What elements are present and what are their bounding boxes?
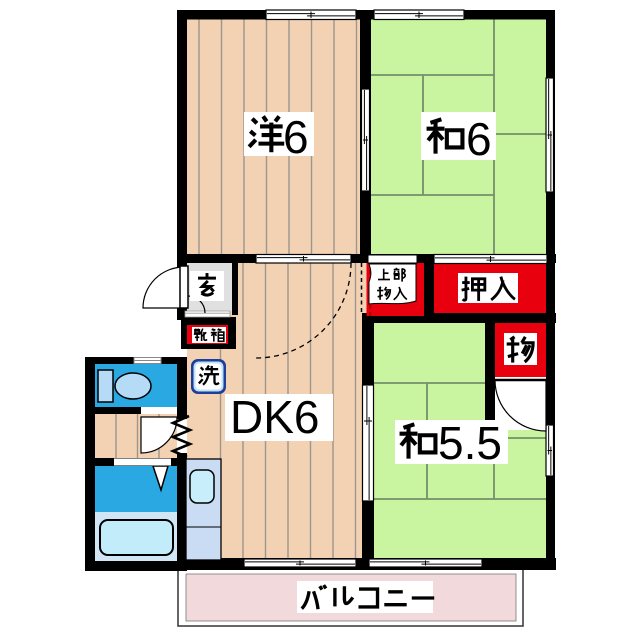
svg-text:DK6: DK6 [230,391,319,443]
svg-text:6: 6 [466,113,492,165]
svg-text:5.5: 5.5 [438,417,502,469]
svg-text:6: 6 [283,111,309,163]
